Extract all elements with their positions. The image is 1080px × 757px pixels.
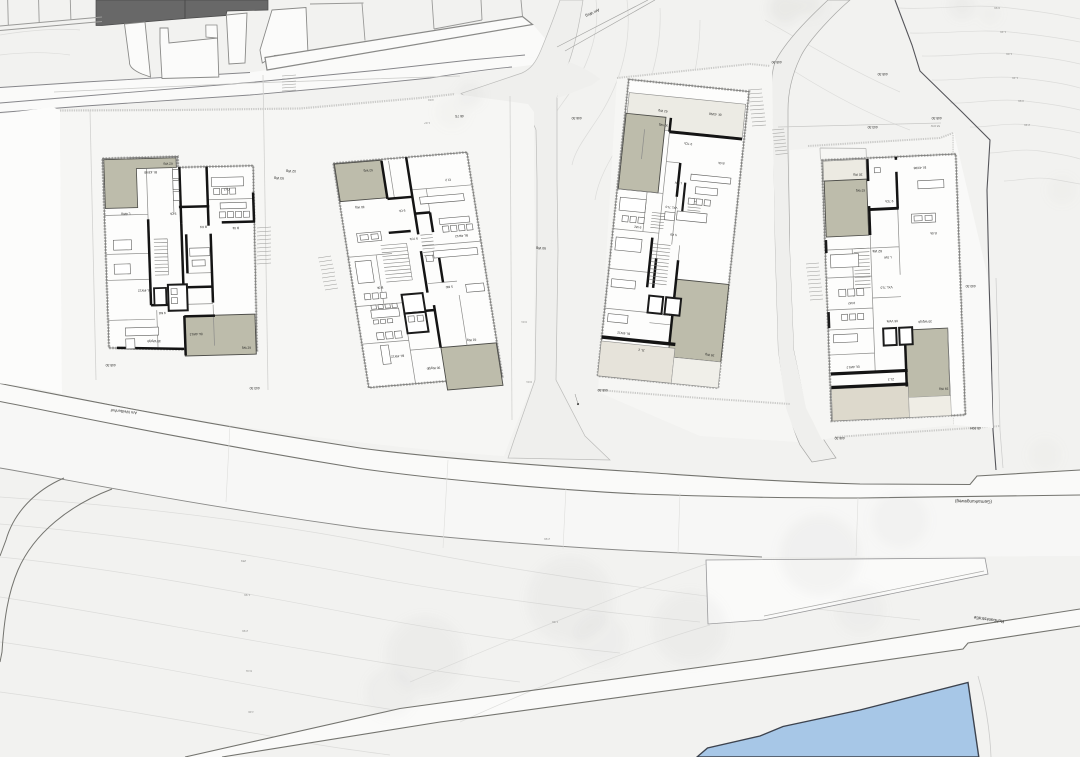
svg-text:L 0W: L 0W <box>884 255 891 259</box>
svg-text:446.30: 446.30 <box>835 436 845 440</box>
svg-text:02 Wg: 02 Wg <box>286 169 296 173</box>
svg-text:BL 4W12: BL 4W12 <box>846 365 859 370</box>
svg-text:90 Wg: 90 Wg <box>536 246 546 250</box>
svg-text:9 Ck: 9 Ck <box>169 212 176 216</box>
svg-text:1.29: 1.29 <box>1000 30 1006 34</box>
svg-text:93 Wg: 93 Wg <box>274 176 284 180</box>
svg-text:2.99: 2.99 <box>544 537 550 541</box>
svg-text:9.99: 9.99 <box>994 6 1000 10</box>
svg-text:1.99: 1.99 <box>244 593 250 597</box>
svg-text:Ct 2: Ct 2 <box>223 187 229 191</box>
svg-text:5 K9: 5 K9 <box>670 232 677 237</box>
svg-text:VXL 7L0: VXL 7L0 <box>880 285 892 290</box>
svg-text:30 Wg/gb: 30 Wg/gb <box>918 319 932 324</box>
svg-text:J.29: J.29 <box>248 710 254 714</box>
svg-text:L 0W: L 0W <box>675 181 683 186</box>
svg-text:B 0k: B 0k <box>718 161 725 166</box>
svg-text:5 M0: 5 M0 <box>445 285 453 290</box>
svg-text:B 0k: B 0k <box>930 231 937 235</box>
svg-text:L 4Wg: L 4Wg <box>121 212 130 216</box>
svg-text:Bl. 43/98: Bl. 43/98 <box>144 170 157 174</box>
svg-text:443 30: 443 30 <box>250 386 260 390</box>
svg-text:445.30: 445.30 <box>932 116 942 120</box>
svg-text:ZL 2: ZL 2 <box>887 377 894 381</box>
svg-text:45.90H: 45.90H <box>970 426 981 430</box>
svg-text:445.30: 445.30 <box>878 72 888 76</box>
svg-text:4.03: 4.03 <box>428 98 434 102</box>
svg-text:9 M2: 9 M2 <box>158 311 165 315</box>
svg-text:30 Wg: 30 Wg <box>853 172 863 176</box>
svg-text:443.30: 443.30 <box>868 125 878 129</box>
svg-text:62 Wg: 62 Wg <box>467 338 477 343</box>
svg-text:Bl. 43/98: Bl. 43/98 <box>913 165 926 170</box>
svg-text:62 Wg: 62 Wg <box>363 168 373 173</box>
svg-text:BL 4W12: BL 4W12 <box>138 288 151 292</box>
svg-text:58 DW: 58 DW <box>931 124 940 128</box>
svg-text:1.59: 1.59 <box>552 620 558 624</box>
svg-text:440.30: 440.30 <box>966 284 976 288</box>
svg-text:62 Wg: 62 Wg <box>242 346 252 350</box>
svg-text:62 Wg: 62 Wg <box>856 188 866 192</box>
svg-text:1.07: 1.07 <box>424 121 430 125</box>
svg-text:3.99: 3.99 <box>1018 99 1024 103</box>
svg-text:9 M2: 9 M2 <box>634 225 642 230</box>
svg-text:46 7S: 46 7S <box>454 114 464 118</box>
svg-text:BL 4W12: BL 4W12 <box>189 332 202 336</box>
svg-text:8.Ck: 8.Ck <box>245 669 252 673</box>
svg-text:9 M2: 9 M2 <box>848 301 855 305</box>
svg-text:9 7Ck: 9 7Ck <box>885 199 894 203</box>
svg-text:30 Wg: 30 Wg <box>355 205 365 210</box>
svg-text:30 Wg/gb: 30 Wg/gb <box>147 339 161 343</box>
svg-text:9 7Ck: 9 7Ck <box>409 236 418 241</box>
svg-text:0.01: 0.01 <box>526 380 532 384</box>
svg-text:62 Wk: 62 Wk <box>872 249 882 253</box>
svg-text:B 0k: B 0k <box>376 285 383 290</box>
svg-text:1.49: 1.49 <box>1012 76 1018 80</box>
svg-text:445.30: 445.30 <box>106 363 116 367</box>
svg-text:445.90: 445.90 <box>772 60 782 64</box>
svg-text:62 Wg: 62 Wg <box>163 162 173 166</box>
svg-text:Ct 2: Ct 2 <box>445 178 452 182</box>
svg-text:259: 259 <box>241 559 246 563</box>
svg-text:B 0k: B 0k <box>232 226 239 230</box>
svg-text:445.30: 445.30 <box>598 388 608 392</box>
svg-text:B K9: B K9 <box>200 225 207 229</box>
svg-text:ZL 2: ZL 2 <box>638 348 645 353</box>
svg-text:06 VWk: 06 VWk <box>886 319 898 324</box>
svg-text:0.01: 0.01 <box>521 320 527 324</box>
svg-text:2.39: 2.39 <box>1024 123 1030 127</box>
svg-text:446.30: 446.30 <box>572 116 582 120</box>
svg-text:(Gemarkungsweg): (Gemarkungsweg) <box>954 499 992 505</box>
svg-text:39 Wg: 39 Wg <box>939 387 949 391</box>
svg-text:9 Ck: 9 Ck <box>398 208 406 213</box>
svg-text:1.09: 1.09 <box>1006 52 1012 56</box>
svg-text:2.99: 2.99 <box>242 629 248 633</box>
